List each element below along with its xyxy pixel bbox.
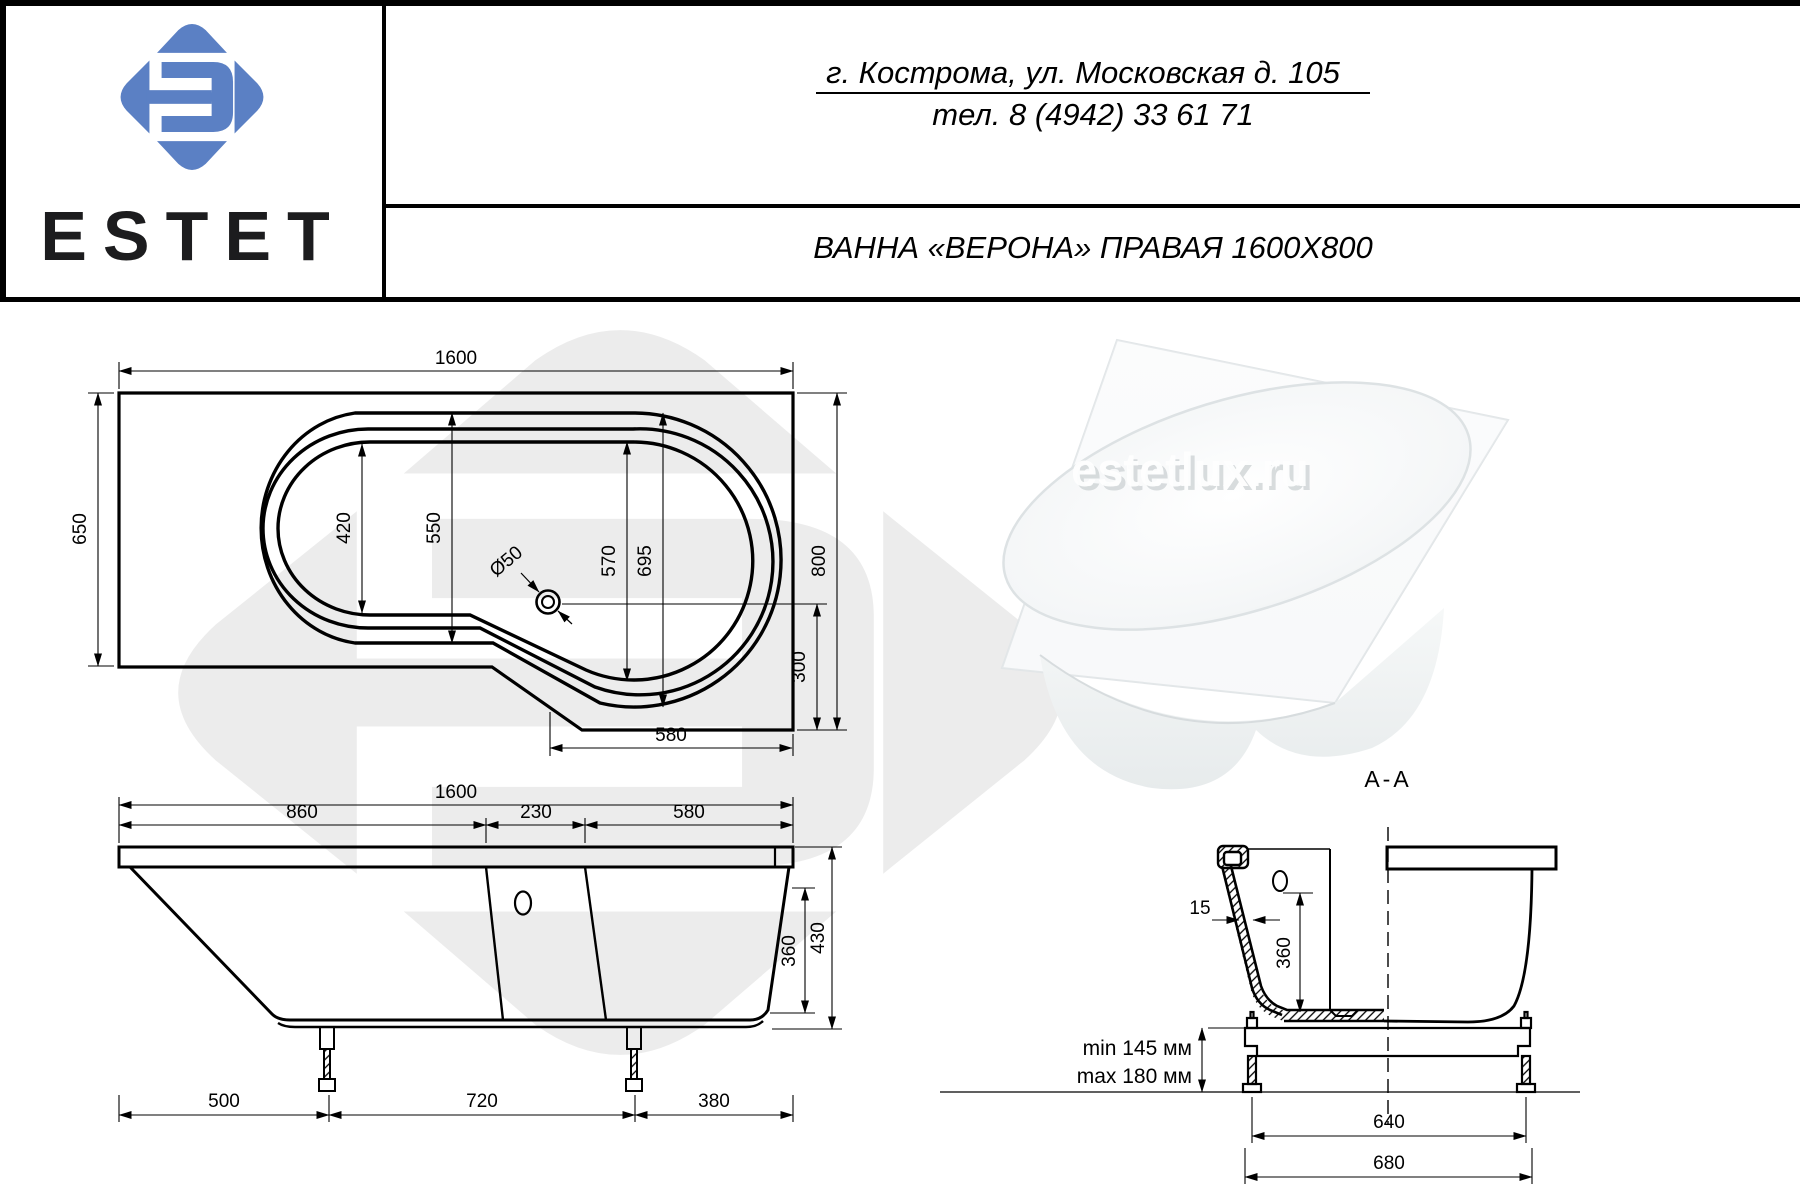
- photo-watermark: estetlux.ru estetlux.ru: [1071, 443, 1313, 500]
- dim-left-width: 650: [70, 513, 91, 545]
- dim-seg-580: 580: [673, 802, 705, 823]
- dim-frame-640: 640: [1373, 1112, 1405, 1133]
- dim-basin-695: 695: [635, 545, 656, 577]
- dim-seg-230: 230: [520, 802, 552, 823]
- spec-sheet-page: 1600 650 800 300 580 420 550 570 695 Ø50: [0, 0, 1800, 1203]
- section-frame: [1243, 1012, 1535, 1092]
- address-line: г. Кострома, ул. Московская д. 105: [816, 55, 1370, 94]
- section-overflow-hole: [1273, 871, 1287, 891]
- dim-right-width: 800: [809, 545, 830, 577]
- dim-side-length: 1600: [435, 782, 477, 803]
- drawing-title: ВАННА «ВЕРОНА» ПРАВАЯ 1600X800: [386, 230, 1800, 266]
- dim-frame-min: min 145 мм: [1083, 1037, 1192, 1060]
- dim-feet-720: 720: [466, 1091, 498, 1112]
- dim-feet-380: 380: [698, 1091, 730, 1112]
- brand-name: ESTET: [18, 196, 368, 276]
- dim-drain-edge: 300: [789, 651, 810, 683]
- phone-line: тел. 8 (4942) 33 61 71: [386, 94, 1800, 136]
- dim-feet-500: 500: [208, 1091, 240, 1112]
- address-separator: [386, 204, 1800, 208]
- estet-logo-icon: [116, 18, 268, 176]
- dim-basin-550: 550: [424, 512, 445, 544]
- titleblock-bottom-border: [0, 297, 1800, 302]
- section-view-drawing: A-A: [940, 766, 1580, 1184]
- dim-inner-depth: 360: [779, 935, 800, 967]
- dim-basin-420: 420: [334, 512, 355, 544]
- technical-drawing-canvas: 1600 650 800 300 580 420 550 570 695 Ø50: [0, 0, 1800, 1203]
- svg-text:estetlux.ru: estetlux.ru: [1071, 443, 1309, 496]
- dim-total-height: 430: [808, 922, 829, 954]
- dim-basin-570: 570: [599, 545, 620, 577]
- dim-frame-680: 680: [1373, 1153, 1405, 1174]
- section-dimensions: [1202, 893, 1532, 1184]
- dim-bottom-flat: 580: [655, 725, 687, 746]
- overflow-hole: [515, 892, 531, 915]
- dim-section-depth: 360: [1274, 937, 1295, 969]
- section-label: A-A: [1364, 766, 1411, 792]
- dim-seg-860: 860: [286, 802, 318, 823]
- dim-top-length: 1600: [435, 348, 477, 369]
- dim-frame-max: max 180 мм: [1077, 1065, 1192, 1088]
- top-border: [0, 0, 1800, 6]
- company-address-block: г. Кострома, ул. Московская д. 105 тел. …: [386, 52, 1800, 136]
- dim-wall-thickness: 15: [1189, 898, 1210, 919]
- left-border: [0, 0, 6, 302]
